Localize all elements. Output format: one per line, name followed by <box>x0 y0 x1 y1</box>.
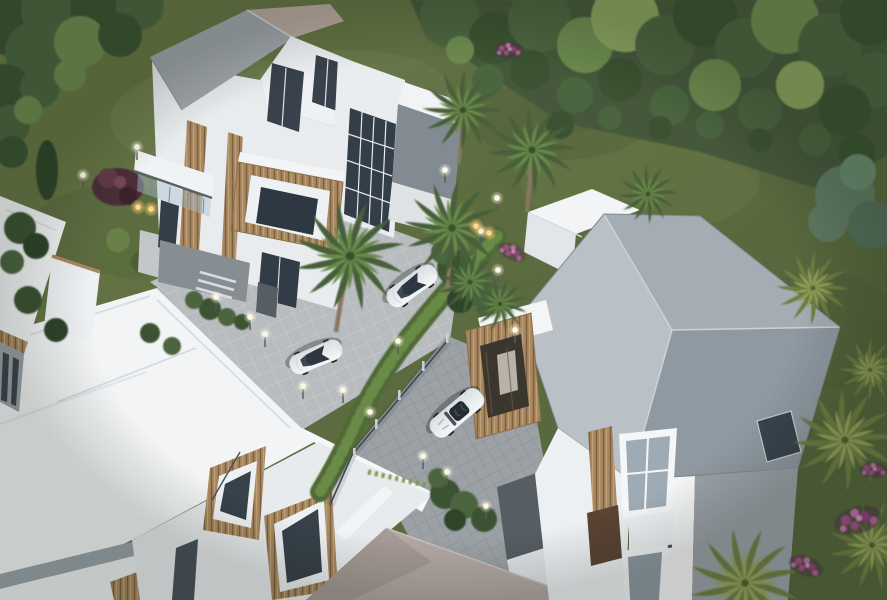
architectural-render <box>0 0 887 600</box>
vignette-overlay <box>0 0 887 600</box>
render-viewport <box>0 0 887 600</box>
